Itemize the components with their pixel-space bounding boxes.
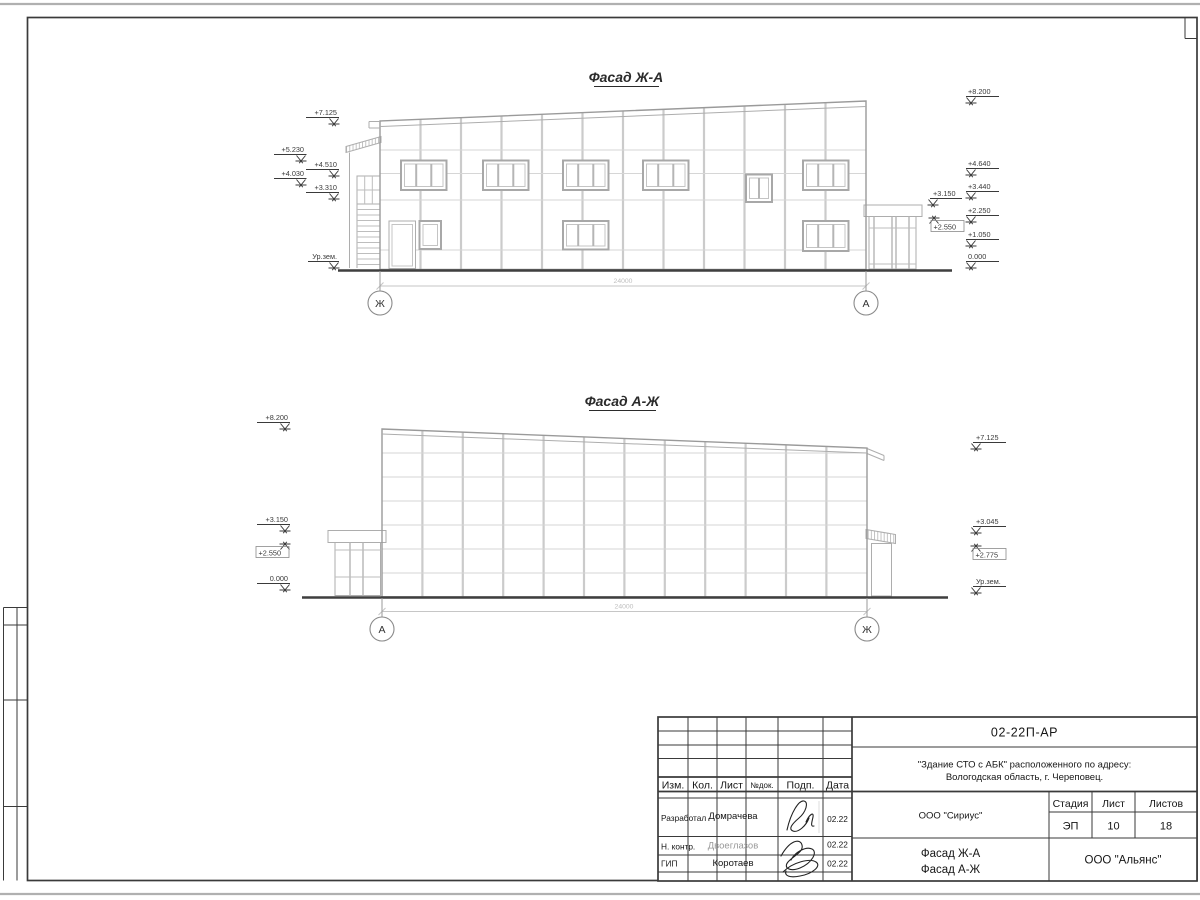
- elevation-mark: Ур.зем.: [971, 577, 1007, 595]
- sheet-label: Лист: [1102, 798, 1125, 810]
- dimension-24000: 24000: [377, 278, 870, 290]
- elevation-mark: +3.440: [966, 182, 1000, 200]
- elevation-mark-label: +4.510: [314, 160, 337, 169]
- stair-tower: [346, 137, 381, 269]
- axis-marker: А: [854, 271, 878, 315]
- elevation-mark-label: +2.550: [934, 223, 957, 232]
- elevation-mark: +3.310: [306, 183, 340, 201]
- col-izm: Изм.: [662, 780, 685, 792]
- elevation-mark: +7.125: [306, 108, 340, 126]
- elevation-mark: +4.030: [274, 169, 307, 187]
- elevation-mark: +4.640: [966, 159, 1000, 177]
- facade-bottom-grid: [382, 428, 867, 597]
- drawing-canvas: Фасад Ж-А: [0, 0, 1200, 900]
- row-date: 02.22: [827, 840, 848, 850]
- project-address-line2: Вологодская область, г. Череповец.: [946, 772, 1103, 783]
- col-kol: Кол.: [692, 780, 713, 792]
- elevation-mark-label: +8.200: [265, 413, 288, 422]
- window: [643, 161, 689, 191]
- window: [563, 161, 609, 191]
- sheets-label: Листов: [1149, 798, 1184, 810]
- elevation-mark: 0.000: [966, 252, 1000, 270]
- window: [420, 221, 442, 249]
- elevation-mark-label: +3.045: [976, 517, 999, 526]
- dimension-24000: 24000: [379, 604, 871, 616]
- facade-top: Фасад Ж-А: [274, 69, 999, 315]
- entrance-annex: [864, 205, 922, 269]
- entrance-door: [389, 221, 416, 269]
- roof-eave: [867, 449, 884, 461]
- elevation-mark-label: +3.310: [314, 183, 337, 192]
- elevation-mark-label: +7.125: [314, 108, 337, 117]
- col-date: Дата: [826, 780, 849, 792]
- window: [401, 161, 447, 191]
- side-canopy: [866, 530, 896, 597]
- axis-marker: А: [370, 598, 394, 641]
- elevation-mark-label: +5.230: [281, 145, 304, 154]
- elevation-mark-label: 0.000: [270, 574, 288, 583]
- col-doc: №док.: [750, 781, 773, 790]
- elevation-mark-label: 0.000: [968, 252, 986, 261]
- elevation-mark-label: +2.250: [968, 206, 991, 215]
- stage-value: ЭП: [1063, 821, 1079, 833]
- project-address-line1: "Здание СТО с АБК" расположенного по адр…: [918, 760, 1131, 771]
- doc-number: 02-22П-АР: [991, 726, 1058, 740]
- elevation-mark: +3.150: [928, 189, 963, 207]
- row-name: Коротаев: [712, 858, 753, 869]
- elevation-mark: +7.125: [971, 433, 1007, 451]
- dimension-label: 24000: [615, 604, 634, 611]
- elevation-mark-label: +8.200: [968, 87, 991, 96]
- elevation-mark-label: +3.440: [968, 182, 991, 191]
- elevation-mark: +2.550: [929, 216, 965, 232]
- elevation-mark: 0.000: [257, 574, 291, 592]
- elevation-mark-label: +3.150: [933, 189, 956, 198]
- elevation-mark-label: +4.030: [281, 169, 304, 178]
- designer-org: ООО "Сириус": [919, 811, 983, 822]
- elevation-mark: +8.200: [966, 87, 1000, 105]
- frame-corner-box: [1185, 18, 1197, 39]
- row-name: Двоеглазов: [708, 841, 759, 852]
- sheets-total: 18: [1160, 821, 1172, 833]
- elevation-mark: +1.050: [966, 230, 1000, 248]
- contractor-org: ООО "Альянс": [1085, 855, 1162, 867]
- entrance-annex: [328, 531, 386, 596]
- elevation-mark: +2.775: [971, 544, 1007, 560]
- axis-marker: Ж: [855, 598, 879, 641]
- window: [483, 161, 529, 191]
- elevation-mark-label: +2.550: [259, 549, 282, 558]
- title-block: Изм. Кол. Лист №док. Подп. Дата Разработ…: [658, 717, 1197, 881]
- window: [746, 175, 772, 203]
- elevation-mark-label: Ур.зем.: [312, 252, 337, 261]
- elevation-mark-label: +2.775: [976, 551, 999, 560]
- elevation-mark-label: Ур.зем.: [976, 577, 1001, 586]
- elevation-mark: +2.250: [966, 206, 1000, 224]
- facade-bottom: Фасад А-Ж: [256, 393, 1006, 641]
- row-role: Разработал: [661, 813, 706, 823]
- dimension-label: 24000: [614, 278, 633, 285]
- facade-bottom-title: Фасад А-Ж: [585, 393, 661, 409]
- elevation-mark: Ур.зем.: [308, 252, 340, 270]
- elevation-mark: +3.045: [971, 517, 1007, 535]
- row-role: Н. контр.: [661, 842, 695, 852]
- elevation-mark: +8.200: [257, 413, 291, 431]
- facade-top-grid: [380, 95, 866, 270]
- elevation-mark: +4.510: [306, 160, 340, 178]
- drawing-title-line1: Фасад Ж-А: [921, 848, 981, 860]
- axis-label: Ж: [375, 298, 385, 310]
- axis-label: А: [862, 298, 869, 310]
- row-name: Домрачева: [708, 811, 758, 822]
- facade-top-title: Фасад Ж-А: [589, 69, 664, 85]
- drawing-sheet: Фасад Ж-А: [0, 0, 1200, 900]
- window: [803, 221, 849, 251]
- left-margin-table: [4, 608, 28, 881]
- elevation-mark: +2.550: [256, 542, 291, 558]
- row-date: 02.22: [827, 814, 848, 824]
- row-date: 02.22: [827, 859, 848, 869]
- elevation-mark-label: +4.640: [968, 159, 991, 168]
- axis-marker: Ж: [368, 271, 392, 315]
- elevation-mark: +3.150: [257, 515, 291, 533]
- axis-label: Ж: [862, 624, 872, 636]
- axis-label: А: [378, 624, 385, 636]
- elevation-mark-label: +1.050: [968, 230, 991, 239]
- sheet-number: 10: [1107, 821, 1119, 833]
- elevation-mark-label: +3.150: [265, 515, 288, 524]
- col-sign: Подп.: [787, 780, 815, 792]
- window: [563, 221, 609, 250]
- elevation-mark-label: +7.125: [976, 433, 999, 442]
- col-list: Лист: [720, 780, 743, 792]
- drawing-title-line2: Фасад А-Ж: [921, 864, 981, 876]
- window: [803, 161, 849, 191]
- stage-label: Стадия: [1053, 798, 1089, 810]
- row-role: ГИП: [661, 859, 677, 869]
- elevation-mark: +5.230: [274, 145, 307, 163]
